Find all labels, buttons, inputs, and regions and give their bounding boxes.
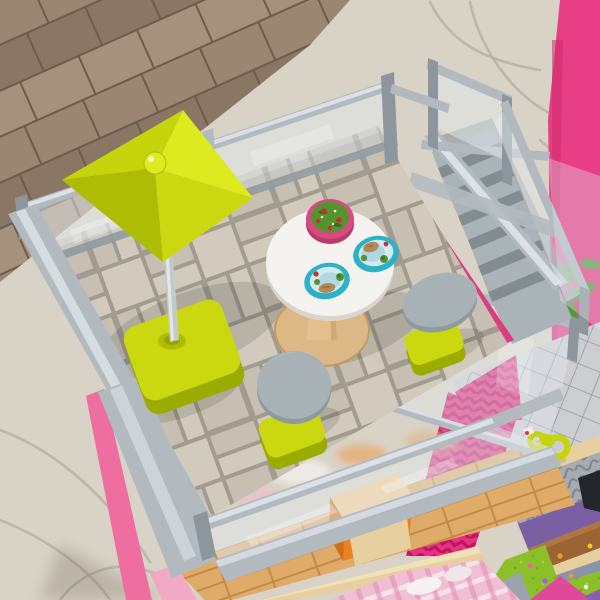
stool-front-seat: [257, 351, 331, 419]
umbrella-finial: [144, 152, 166, 174]
dollhouse-terrace-photo: [0, 0, 600, 600]
stool-front: [256, 351, 331, 472]
photo-canvas: [0, 0, 600, 600]
salad-bowl: [306, 199, 354, 244]
